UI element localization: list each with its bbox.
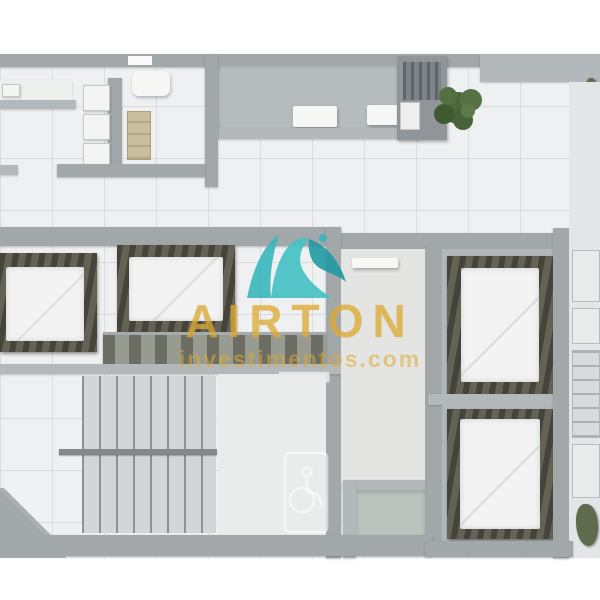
terrace-parapet (216, 128, 422, 139)
counter-item (2, 84, 20, 97)
kitchen-wall-bottom (57, 164, 205, 177)
kitchen-wall-right (205, 54, 218, 187)
kitchen-appliance-2 (83, 114, 110, 140)
closet-shelf-1 (572, 250, 600, 302)
terrace-bench-left (293, 106, 337, 127)
bed-left-2-duvet (129, 257, 223, 321)
wall-bottom-right (425, 541, 573, 557)
bed-upper-right-duvet (461, 268, 539, 382)
outdoor-sink (400, 102, 420, 130)
wheelchair-accessible-icon (282, 450, 330, 535)
room-middle-floor (341, 249, 425, 480)
kitchen-table (132, 71, 170, 96)
plant-icon (428, 80, 490, 138)
kitchen-cabinet-beige (127, 111, 151, 160)
bed-lower-right-duvet (460, 419, 540, 529)
room-middle-shelf (352, 258, 398, 268)
closet-shelf-3 (572, 350, 600, 438)
wall-middle-right (341, 233, 575, 249)
kitchen-appliance-1 (83, 85, 110, 111)
window-top (128, 56, 152, 65)
closet-shelf-4 (572, 444, 600, 498)
kitchen-counter-edge (0, 100, 76, 109)
closet-dark-item (576, 504, 598, 546)
bed-left-1-duvet (6, 267, 84, 341)
stair-handrail (59, 449, 217, 455)
wall-chamfer-corner (0, 488, 66, 558)
wall-middle-left (0, 227, 341, 246)
closet-shelf-2 (572, 308, 600, 344)
wall-top-right (480, 54, 600, 82)
kitchen-wall-inner (108, 78, 122, 175)
left-edge-shelf (0, 165, 18, 175)
wall-right-divider (428, 394, 558, 405)
wall-right (553, 228, 569, 558)
floor-plan-image: AIRTON investimentos.com (0, 0, 600, 600)
